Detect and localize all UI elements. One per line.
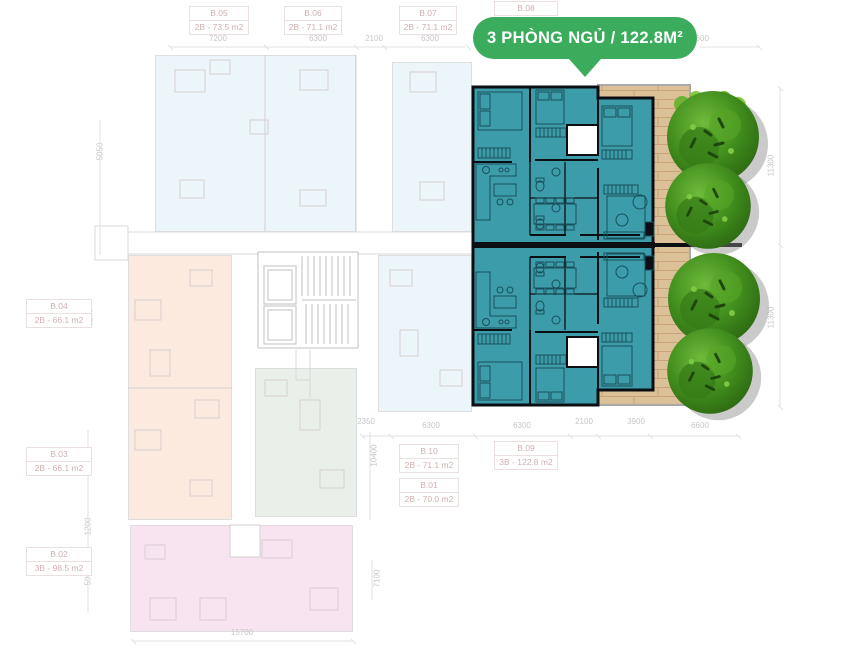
floorplan-canvas: B.05 2B - 73.5 m2 B.06 2B - 71.1 m2 B.07…	[0, 0, 855, 655]
unit-id: B.01	[400, 479, 458, 493]
unit-id: B.05	[190, 7, 248, 21]
plan-drawing	[0, 0, 855, 655]
unit-size: 2B - 66.1 m2	[27, 314, 91, 327]
unit-label-b07: B.07 2B - 71.1 m2	[399, 6, 457, 35]
stair-core	[258, 252, 358, 398]
unit-size: 3B - 122.8 m2	[495, 456, 557, 469]
unit-size: 2B - 73.5 m2	[190, 21, 248, 34]
unit-label-b10: B.10 2B - 71.1 m2	[399, 444, 459, 473]
unit-tooltip-badge: 3 PHÒNG NGỦ / 122.8M²	[473, 17, 697, 59]
unit-id: B.06	[285, 7, 341, 21]
unit-label-b04: B.04 2B - 66.1 m2	[26, 299, 92, 328]
unit-size: 2B - 71.1 m2	[285, 21, 341, 34]
unit-size: 2B - 71.1 m2	[400, 459, 458, 472]
unit-label-b09: B.09 3B - 122.8 m2	[494, 441, 558, 470]
unit-id: B.09	[495, 442, 557, 456]
unit-id: B.04	[27, 300, 91, 314]
unit-label-b08: B.08	[494, 1, 558, 16]
unit-label-b01: B.01 2B - 70.0 m2	[399, 478, 459, 507]
unit-label-b03: B.03 2B - 66.1 m2	[26, 447, 92, 476]
unit-id: B.07	[400, 7, 456, 21]
unit-size: 2B - 70.0 m2	[400, 493, 458, 506]
unit-size: 2B - 66.1 m2	[27, 462, 91, 475]
unit-id: B.08	[495, 2, 557, 15]
unit-label-b02: B.02 3B - 98.5 m2	[26, 547, 92, 576]
badge-label: 3 PHÒNG NGỦ / 122.8M²	[487, 29, 683, 48]
unit-label-b05: B.05 2B - 73.5 m2	[189, 6, 249, 35]
unit-id: B.10	[400, 445, 458, 459]
unit-id: B.02	[27, 548, 91, 562]
unit-label-b06: B.06 2B - 71.1 m2	[284, 6, 342, 35]
unit-size: 3B - 98.5 m2	[27, 562, 91, 575]
unit-id: B.03	[27, 448, 91, 462]
unit-size: 2B - 71.1 m2	[400, 21, 456, 34]
